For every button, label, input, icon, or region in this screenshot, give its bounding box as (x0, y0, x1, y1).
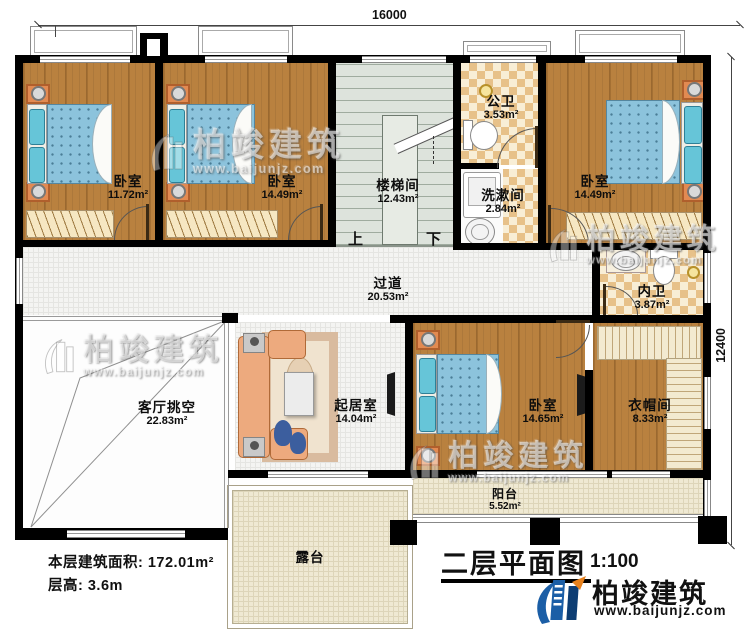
room-label-balcony: 阳台 5.52m² (465, 488, 545, 513)
wall-bedrooms-bottom (15, 240, 336, 247)
pillow (29, 109, 45, 145)
door-leaf (603, 284, 606, 315)
bay-window (198, 26, 293, 57)
door-leaf (146, 204, 149, 240)
wardrobe (166, 210, 278, 238)
room-label-terrace: 露台 (270, 550, 350, 565)
window (585, 56, 677, 63)
void-border (228, 316, 229, 528)
dimension-top-value: 16000 (372, 8, 407, 22)
closet (597, 326, 701, 360)
stair-direction-line (433, 136, 435, 164)
wall-bath-divider (461, 163, 499, 169)
room-label-sitting-room: 起居室 14.04m² (314, 398, 398, 425)
room-label-living-void: 客厅挑空 22.83m² (107, 400, 227, 427)
dimension-right-value: 12400 (714, 328, 728, 363)
window (362, 56, 446, 63)
person-figure (290, 432, 306, 454)
door-leaf (320, 204, 323, 240)
watermark-logo-icon (40, 335, 77, 377)
window (205, 56, 287, 63)
nightstand (26, 182, 50, 202)
flue-opening (147, 39, 160, 56)
pillow (419, 358, 436, 394)
armchair (268, 330, 306, 359)
window (16, 258, 23, 304)
floor-area-text: 本层建筑面积: 172.01m² (48, 552, 214, 575)
floor-stats: 本层建筑面积: 172.01m² 层高: 3.6m (48, 552, 214, 598)
door-leaf (535, 126, 538, 168)
watermark-logo-icon (405, 441, 442, 483)
dimension-ext (55, 25, 56, 37)
nightstand (26, 84, 50, 104)
bay-window (30, 26, 137, 57)
nightstand (416, 330, 440, 350)
room-label-corridor: 过道 20.53m² (348, 276, 428, 303)
watermark: 柏竣建筑 www.baijunjz.com (545, 224, 720, 266)
watermark-logo-icon (545, 225, 580, 265)
toilet (470, 121, 498, 150)
pillar (698, 516, 727, 544)
nightstand (166, 84, 190, 104)
window (67, 530, 185, 538)
window (470, 56, 536, 63)
bay-window (575, 30, 685, 57)
room-label-bedroom4: 卧室 14.65m² (503, 398, 583, 425)
void-border (23, 320, 228, 321)
door-leaf (556, 320, 590, 323)
light-fixture (687, 266, 700, 279)
room-label-washroom: 洗漱间 2.84m² (458, 188, 548, 215)
brand-url: www.baijunjz.com (594, 603, 727, 618)
room-label-cloakroom: 衣帽间 8.33m² (610, 398, 690, 425)
floor-height-text: 层高: 3.6m (48, 575, 214, 598)
room-label-stairwell: 楼梯间 12.43m² (355, 178, 441, 205)
void-border (23, 316, 228, 317)
wall-bath-bed3 (538, 63, 546, 250)
sliding-window (268, 471, 368, 478)
watermark: 柏竣建筑 www.baijunjz.com (40, 334, 223, 378)
pillar (530, 518, 560, 545)
bay-window (463, 41, 551, 56)
side-table (243, 437, 265, 457)
stair-down-label: 下 (426, 228, 441, 249)
watermark: 柏竣建筑 www.baijunjz.com (146, 128, 345, 176)
corridor-floor (23, 247, 592, 315)
room-label-bedroom1: 卧室 11.72m² (88, 174, 168, 201)
pillow (684, 106, 702, 144)
dimension-line-top (38, 25, 740, 26)
window (704, 480, 711, 516)
wall-stair-bath (453, 63, 461, 250)
room-label-bedroom2: 卧室 14.49m² (242, 174, 322, 201)
pillow (29, 147, 45, 183)
watermark: 柏竣建筑 www.baijunjz.com (405, 440, 588, 484)
watermark-logo-icon (146, 129, 186, 175)
dimension-line-right (731, 57, 732, 545)
room-label-public-bath: 公卫 3.53m² (466, 94, 536, 121)
round-sink (465, 218, 495, 246)
pillow (684, 146, 702, 184)
nightstand (166, 182, 190, 202)
floor-plan: 16000 12400 (0, 0, 750, 639)
brand-logo-icon (528, 568, 588, 628)
wardrobe (26, 210, 114, 238)
plan-scale: 1:100 (590, 551, 639, 573)
room-label-bedroom3: 卧室 14.49m² (555, 174, 635, 201)
coffee-table (284, 372, 314, 416)
stair-up-label: 上 (348, 228, 363, 249)
room-label-inner-bath: 内卫 3.87m² (612, 284, 692, 311)
window (612, 471, 670, 478)
wall-stub-void (222, 313, 238, 323)
side-table (243, 333, 265, 353)
pillow (419, 396, 436, 432)
window (704, 377, 711, 429)
pillar (390, 520, 417, 545)
window (40, 56, 130, 63)
